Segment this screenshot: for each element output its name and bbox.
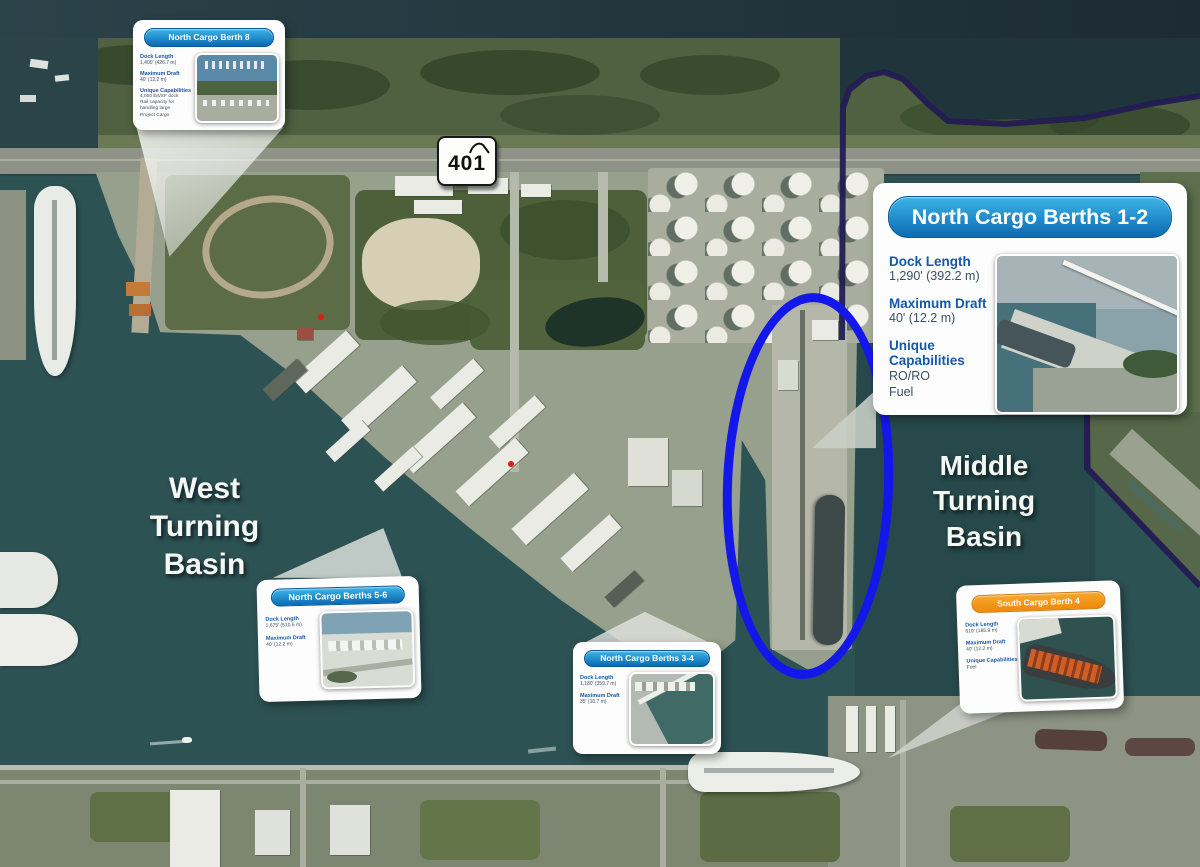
tree-cluster [380,300,490,345]
red-marker-dot [318,314,324,320]
callout-leader-ncb56 [270,526,405,580]
label-line: Basin [898,519,1070,554]
tree-cluster [420,50,600,95]
berth-photo [319,609,415,689]
tree-cluster [500,95,660,135]
port-map: West Turning Basin Middle Turning Basin … [0,0,1200,867]
field-label: Dock Length [889,254,995,269]
field-value: 40' (12.2 m) [266,640,320,647]
photo-sheds [635,682,695,691]
street [660,768,666,867]
cruise-ship [0,552,58,608]
barge [126,282,150,296]
route-401-shield: 401 [437,136,497,186]
sand-clearing [362,218,480,310]
label-line: Middle [898,448,1070,483]
barge [129,304,151,316]
callout-card-ncb34: North Cargo Berths 3-4 Dock Length 1,180… [573,642,721,754]
middle-turning-basin-label: Middle Turning Basin [898,448,1070,554]
tanker-ship [1125,738,1195,756]
lawn [420,800,540,860]
boat [182,737,192,743]
field-value: 1,180' (359.7 m) [580,681,629,687]
tree-cluster [500,200,630,260]
field-label: Maximum Draft [889,296,995,311]
label-line: Basin [122,546,287,584]
photo-dock [197,95,277,121]
callout-card-scb4: South Cargo Berth 4 Dock Length 610' (18… [956,580,1124,714]
field-value: 40' (12.2 m) [889,311,995,325]
building [330,805,370,855]
cruise-ship-deckline [704,768,834,773]
photo-sheds [328,639,402,651]
label-line: Turning [122,508,287,546]
warehouse [414,200,462,214]
marina-water [0,38,98,150]
red-marker-dot [508,461,514,467]
field-value: RO/RO Fuel [889,368,995,401]
berth-photo [195,53,279,123]
field-value: 4,000 lbs/SF dock Rail capacity for hand… [140,94,195,119]
building [255,810,290,855]
field-value: 35' (10.7 m) [580,699,629,705]
street [300,768,306,867]
field-value: Fuel [967,663,1019,671]
photo-marina-boats [205,61,265,69]
field-value: 1,290' (392.2 m) [889,269,995,283]
large-white-building [170,790,220,867]
local-road [598,172,608,282]
label-line: Turning [898,483,1070,518]
tree-cluster [640,55,780,95]
gantry-structure [885,706,895,752]
field-value: 40' (12.2 m) [140,77,195,83]
street [900,700,906,867]
photo-trees [1123,350,1179,378]
label-line: West [122,470,287,508]
cruise-ship-deckline [52,200,57,360]
callout-card-ncb56: North Cargo Berths 5-6 Dock Length 1,675… [256,576,421,702]
card-title: North Cargo Berths 1-2 [888,196,1172,238]
warehouse [672,470,702,506]
field-value: 1,400' (426.7 m) [140,60,195,66]
marina-dock [20,95,36,102]
cruise-ship [0,614,78,666]
tanker-ship [1035,729,1108,752]
warehouse [521,184,551,197]
field-label: Unique Capabilities [889,338,995,368]
photo-pier-corner [1017,614,1062,644]
warehouse [628,438,668,486]
berth-photo [629,672,715,746]
florida-outline-icon [469,141,491,155]
berth-photo [995,254,1179,414]
boat-wake [528,747,556,754]
field-value: 610' (185.9 m) [965,627,1017,635]
lawn [700,792,840,862]
field-value: 40' (12.2 m) [966,645,1018,653]
shore-edge [0,765,700,770]
field-value: 1,675' (510.5 m) [266,622,320,629]
red-roof-building [297,328,313,340]
lawn [950,806,1070,862]
callout-card-ncb12: North Cargo Berths 1-2 Dock Length 1,290… [873,183,1187,415]
gantry-structure [846,706,858,752]
gantry-structure [866,706,876,752]
card-title: North Cargo Berths 3-4 [584,650,710,667]
card-title: North Cargo Berth 8 [144,28,274,47]
west-turning-basin-label: West Turning Basin [122,470,287,583]
route-number: 401 [439,152,495,176]
photo-vehicles [203,100,269,106]
cruise-terminal-pier [0,190,26,360]
callout-card-ncb8: North Cargo Berth 8 Dock Length 1,400' (… [133,20,285,130]
berth-photo [1017,614,1118,701]
